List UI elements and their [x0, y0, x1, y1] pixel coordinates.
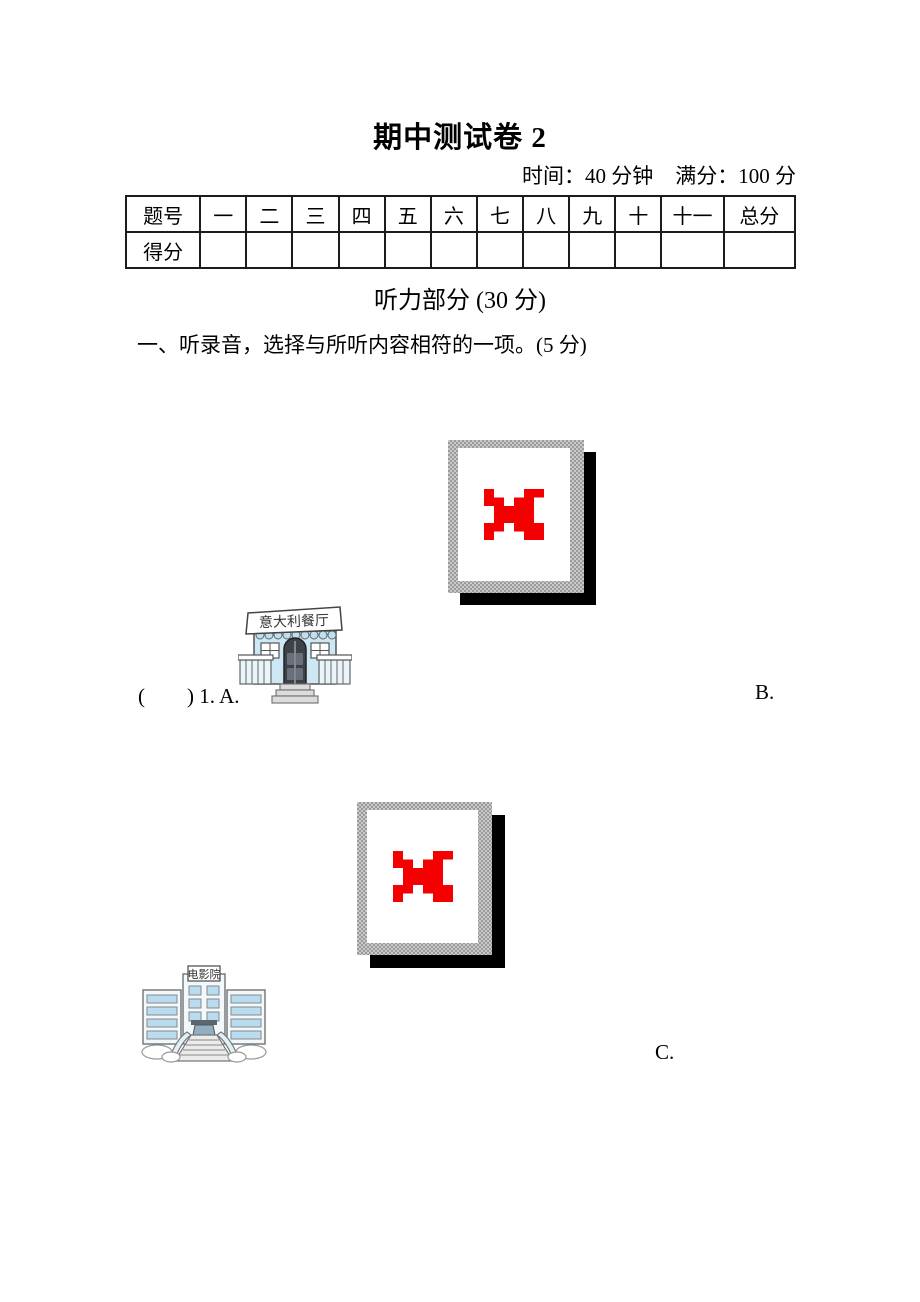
restaurant-illustration: 意大利餐厅 [238, 601, 352, 706]
exam-meta: 时间：40 分钟满分：100 分 [0, 160, 796, 190]
question1-prompt: 一、听录音，选择与所听内容相符的一项。(5 分) [137, 329, 587, 359]
question-col-total: 总分 [724, 196, 795, 232]
question-col: 六 [431, 196, 477, 232]
broken-image-paper [458, 448, 570, 581]
exam-full-score: 满分：100 分 [675, 164, 796, 188]
question-col: 二 [246, 196, 292, 232]
question-col: 九 [569, 196, 615, 232]
question-col: 十 [615, 196, 661, 232]
broken-image-placeholder-b [448, 440, 584, 593]
question-col: 四 [339, 196, 385, 232]
score-cell [246, 232, 292, 268]
score-cell [200, 232, 246, 268]
broken-image-paper [367, 810, 478, 943]
table-row-scores: 得分 [126, 232, 795, 268]
exam-paper-page: 期中测试卷 2 时间：40 分钟满分：100 分 题号 一 二 三 四 五 六 … [0, 0, 920, 1302]
table-row-question-numbers: 题号 一 二 三 四 五 六 七 八 九 十 十一 总分 [126, 196, 795, 232]
exam-time: 时间：40 分钟 [522, 164, 653, 188]
broken-image-placeholder-c [357, 802, 492, 955]
score-cell [292, 232, 338, 268]
score-cell [615, 232, 661, 268]
question-col: 一 [200, 196, 246, 232]
broken-image-red-x-icon [393, 851, 453, 902]
score-cell [431, 232, 477, 268]
score-table: 题号 一 二 三 四 五 六 七 八 九 十 十一 总分 得分 [125, 195, 796, 269]
question-col: 七 [477, 196, 523, 232]
score-cell [339, 232, 385, 268]
question-col: 八 [523, 196, 569, 232]
option-c-label: C. [655, 1040, 674, 1065]
score-cell [661, 232, 723, 268]
cinema-illustration: 电影院 [141, 962, 267, 1064]
score-cell [523, 232, 569, 268]
header-cell-defen: 得分 [126, 232, 200, 268]
question-col: 三 [292, 196, 338, 232]
score-cell [569, 232, 615, 268]
answer-blank-q1-option-a-label: ( ) 1. A. [138, 680, 240, 710]
header-cell-tihao: 题号 [126, 196, 200, 232]
cinema-sign-text: 电影院 [188, 967, 221, 981]
score-cell [385, 232, 431, 268]
question-col: 五 [385, 196, 431, 232]
page-title: 期中测试卷 2 [0, 114, 920, 156]
listening-section-title: 听力部分 (30 分) [0, 280, 920, 315]
score-cell-total [724, 232, 795, 268]
broken-image-red-x-icon [484, 489, 544, 540]
score-cell [477, 232, 523, 268]
option-b-label: B. [755, 680, 774, 705]
question-col: 十一 [661, 196, 723, 232]
